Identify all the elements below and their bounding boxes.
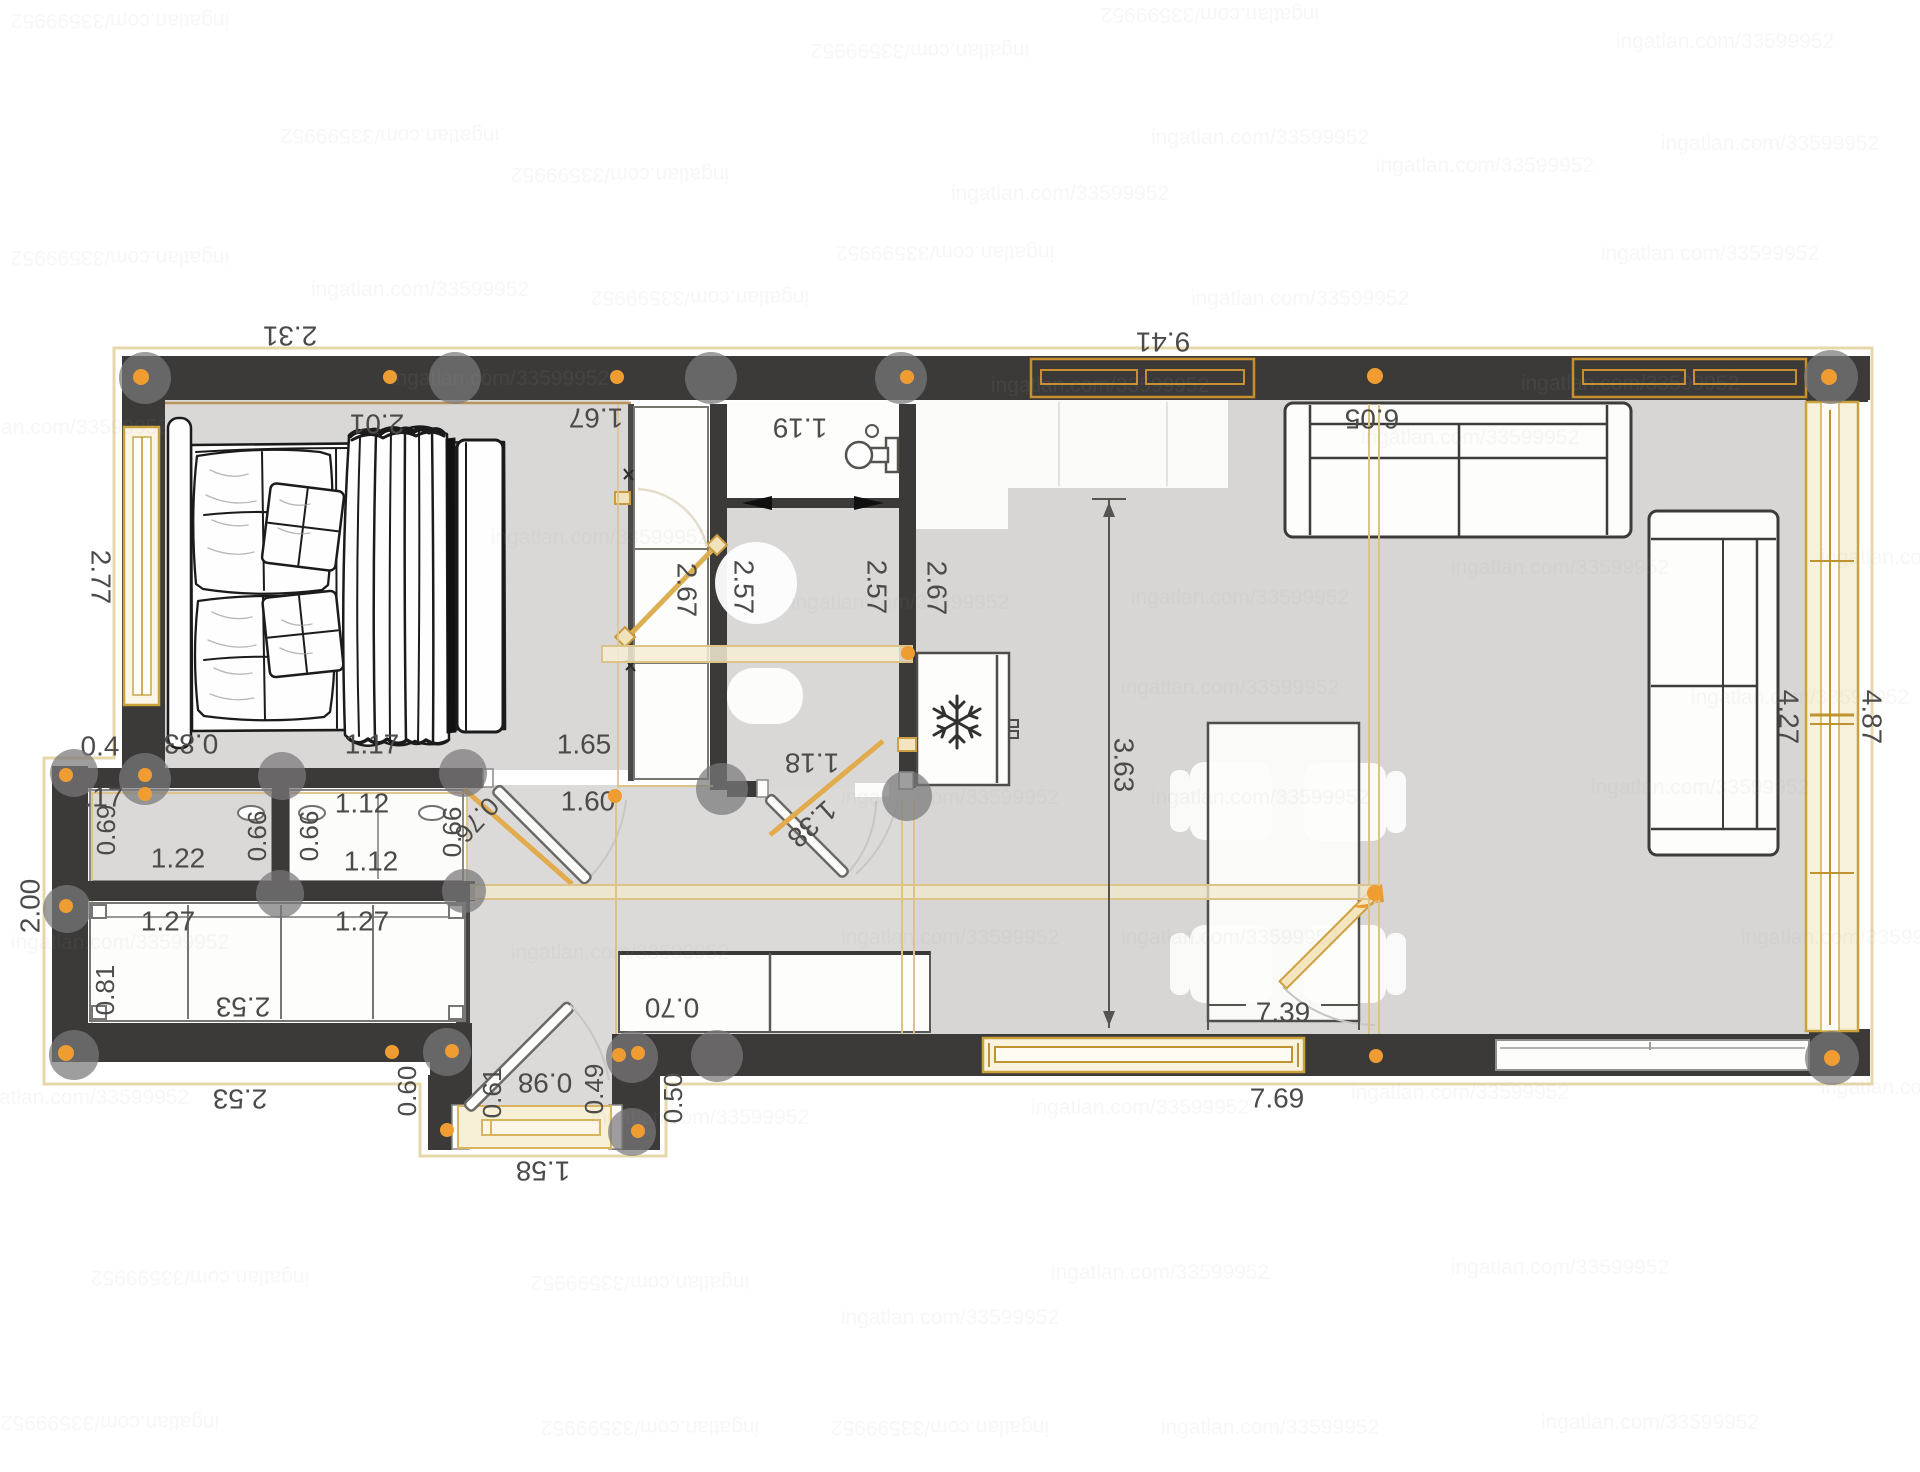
svg-text:ingatlan.com/33599952: ingatlan.com/33599952 bbox=[591, 1106, 809, 1129]
svg-text:ingatlan.com/33599952: ingatlan.com/33599952 bbox=[1691, 686, 1909, 709]
svg-text:ingatlan.com/33599952: ingatlan.com/33599952 bbox=[311, 278, 529, 301]
svg-text:2.00: 2.00 bbox=[15, 879, 46, 934]
svg-text:ingatlan.com/33599952: ingatlan.com/33599952 bbox=[1376, 154, 1594, 177]
svg-text:1.17: 1.17 bbox=[345, 729, 400, 760]
svg-text:ingatlan.com/33599952: ingatlan.com/33599952 bbox=[811, 39, 1029, 62]
svg-text:ingatlan.com/33599952: ingatlan.com/33599952 bbox=[1121, 926, 1339, 949]
svg-text:ingatlan.com/33599952: ingatlan.com/33599952 bbox=[991, 374, 1209, 397]
svg-text:ingatlan.com/33599952: ingatlan.com/33599952 bbox=[1151, 786, 1369, 809]
svg-text:ingatlan.com/33599952: ingatlan.com/33599952 bbox=[951, 182, 1169, 205]
svg-text:ingatlan.com/33599952: ingatlan.com/33599952 bbox=[541, 1416, 759, 1439]
svg-text:ingatlan.com/33599952: ingatlan.com/33599952 bbox=[11, 931, 229, 954]
svg-text:2.53: 2.53 bbox=[213, 1084, 268, 1115]
svg-text:0.66: 0.66 bbox=[242, 811, 272, 862]
svg-text:1.58: 1.58 bbox=[516, 1156, 571, 1187]
svg-text:ingatlan.com/33599952: ingatlan.com/33599952 bbox=[1741, 926, 1920, 949]
svg-text:ingatlan.com/33599952: ingatlan.com/33599952 bbox=[1031, 1096, 1249, 1119]
svg-text:1.19: 1.19 bbox=[773, 413, 828, 444]
svg-text:0.66: 0.66 bbox=[294, 811, 324, 862]
svg-text:ingatlan.com/33599952: ingatlan.com/33599952 bbox=[1151, 126, 1369, 149]
svg-text:0.61: 0.61 bbox=[477, 1068, 507, 1119]
svg-text:7.39: 7.39 bbox=[1256, 997, 1311, 1028]
svg-text:2.31: 2.31 bbox=[263, 321, 318, 352]
svg-text:1.12: 1.12 bbox=[335, 788, 390, 819]
svg-text:ingatlan.com/33599952: ingatlan.com/33599952 bbox=[491, 526, 709, 549]
svg-text:ingatlan.com/33599952: ingatlan.com/33599952 bbox=[1591, 776, 1809, 799]
svg-text:1.60: 1.60 bbox=[561, 786, 616, 817]
svg-text:7.69: 7.69 bbox=[1250, 1083, 1305, 1114]
svg-text:9.41: 9.41 bbox=[1136, 327, 1191, 358]
svg-text:1.67: 1.67 bbox=[569, 403, 624, 434]
svg-text:ingatlan.com/33599952: ingatlan.com/33599952 bbox=[511, 163, 729, 186]
svg-text:0.98: 0.98 bbox=[518, 1068, 573, 1099]
svg-text:ingatlan.com/33599952: ingatlan.com/33599952 bbox=[1451, 556, 1669, 579]
svg-text:ingatlan.com/33599952: ingatlan.com/33599952 bbox=[1361, 426, 1579, 449]
svg-text:ingatlan.com/33599952: ingatlan.com/33599952 bbox=[1161, 1416, 1379, 1439]
svg-text:ingatlan.com/33599952: ingatlan.com/33599952 bbox=[836, 241, 1054, 264]
svg-text:0.69: 0.69 bbox=[91, 805, 121, 856]
svg-text:ingatlan.com/33599952: ingatlan.com/33599952 bbox=[1131, 586, 1349, 609]
svg-text:ingatlan.com/33599952: ingatlan.com/33599952 bbox=[1451, 1256, 1669, 1279]
svg-text:ingatlan.com/33599952: ingatlan.com/33599952 bbox=[1521, 372, 1739, 395]
svg-text:ingatlan.com: ingatlan.com bbox=[1820, 546, 1920, 569]
svg-text:ingatlan.com/33599952: ingatlan.com/33599952 bbox=[0, 1086, 189, 1109]
svg-text:2.01: 2.01 bbox=[350, 409, 405, 440]
svg-text:0.81: 0.81 bbox=[90, 965, 120, 1016]
svg-text:2.57: 2.57 bbox=[729, 560, 760, 615]
svg-text:ingatlan.com/33599952: ingatlan.com/33599952 bbox=[591, 286, 809, 309]
svg-text:ingatlan.com: ingatlan.com bbox=[1820, 1076, 1920, 1099]
svg-text:ingatlan.com/33599952: ingatlan.com/33599952 bbox=[1661, 132, 1879, 155]
svg-text:ingatlan.com/33599952: ingatlan.com/33599952 bbox=[1541, 1411, 1759, 1434]
svg-text:ingatlan.com/33599952: ingatlan.com/33599952 bbox=[11, 246, 229, 269]
svg-text:ingatlan.com/33599952: ingatlan.com/33599952 bbox=[841, 786, 1059, 809]
svg-text:1.18: 1.18 bbox=[785, 748, 840, 779]
svg-text:ingatlan.com/33599952: ingatlan.com/33599952 bbox=[91, 1266, 309, 1289]
svg-text:ingatlan.com/33599952: ingatlan.com/33599952 bbox=[841, 1306, 1059, 1329]
svg-text:ingatlan.com/33599952: ingatlan.com/33599952 bbox=[1051, 1261, 1269, 1284]
svg-text:1.22: 1.22 bbox=[151, 843, 206, 874]
svg-text:2.53: 2.53 bbox=[216, 992, 271, 1023]
svg-text:0.70: 0.70 bbox=[645, 993, 700, 1024]
svg-text:ingatlan.com/33599952: ingatlan.com/33599952 bbox=[1351, 1081, 1569, 1104]
svg-text:ingatlan.com/33599952: ingatlan.com/33599952 bbox=[791, 591, 1009, 614]
svg-text:ingatlan.com/33599952: ingatlan.com/33599952 bbox=[841, 926, 1059, 949]
svg-text:ingatlan.com/33599952: ingatlan.com/33599952 bbox=[831, 1416, 1049, 1439]
svg-text:ingatlan.com/33599952: ingatlan.com/33599952 bbox=[281, 124, 499, 147]
svg-text:ingatlan.com/33599952: ingatlan.com/33599952 bbox=[11, 9, 229, 32]
svg-text:1.65: 1.65 bbox=[557, 729, 612, 760]
svg-text:ingatlan.com/33599952: ingatlan.com/33599952 bbox=[511, 941, 729, 964]
svg-text:ingatlan.com/33599952: ingatlan.com/33599952 bbox=[1, 1411, 219, 1434]
svg-text:ingatlan.com/33599952: ingatlan.com/33599952 bbox=[1121, 676, 1339, 699]
svg-text:ingatlan.com/33599952: ingatlan.com/33599952 bbox=[1191, 287, 1409, 310]
svg-text:0.60: 0.60 bbox=[392, 1066, 422, 1117]
svg-text:ingatlan.com/33599952: ingatlan.com/33599952 bbox=[391, 367, 609, 390]
svg-text:ingatlan.com/33599952: ingatlan.com/33599952 bbox=[531, 1271, 749, 1294]
svg-text:0.83: 0.83 bbox=[164, 729, 219, 760]
svg-text:ingatlan.com/33599952: ingatlan.com/33599952 bbox=[1601, 242, 1819, 265]
svg-text:ingatlan.com/33599952: ingatlan.com/33599952 bbox=[1101, 3, 1319, 26]
svg-text:2.77: 2.77 bbox=[86, 550, 117, 605]
svg-text:ingatlan.com/33599952: ingatlan.com/33599952 bbox=[1616, 30, 1834, 53]
svg-text:1.12: 1.12 bbox=[344, 846, 399, 877]
svg-text:2.67: 2.67 bbox=[672, 563, 703, 618]
svg-text:1.27: 1.27 bbox=[335, 906, 390, 937]
svg-text:3.63: 3.63 bbox=[1109, 738, 1140, 793]
svg-text:ingatlan.com/33599952: ingatlan.com/33599952 bbox=[0, 416, 169, 439]
